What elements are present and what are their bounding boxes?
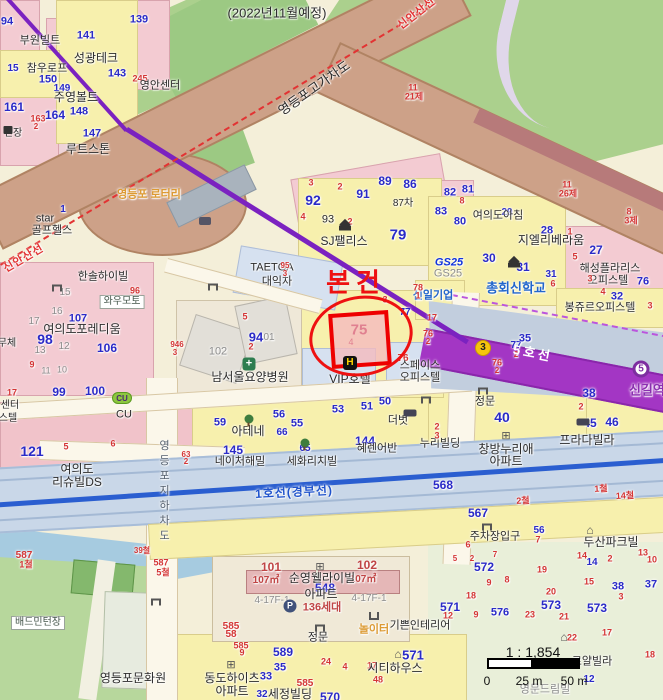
map-label: 9	[473, 611, 478, 620]
map-label: 6	[465, 541, 470, 550]
cu-icon: CU	[112, 392, 132, 404]
map-label: 19	[537, 566, 547, 575]
gate-icon	[52, 285, 62, 292]
map-label: 4	[600, 288, 605, 297]
map-label: 2	[184, 458, 188, 466]
map-label: 59	[214, 418, 226, 429]
map-label: 7	[493, 551, 497, 559]
map-label: 아파트	[489, 455, 522, 467]
map-label: 53	[332, 405, 344, 416]
map-label: 골프헬스	[32, 226, 72, 237]
map-label: 14철	[616, 491, 635, 501]
map-label: 2	[426, 338, 430, 346]
map-label: 누리빌딩	[420, 439, 460, 450]
map-label: 589	[273, 646, 293, 658]
map-label: 2철	[516, 496, 530, 506]
map-label: 567	[468, 507, 488, 519]
map-label: 여의도아침	[473, 211, 524, 222]
map-label: 568	[433, 479, 453, 491]
map-label: 13	[638, 549, 648, 558]
map-label: star	[36, 214, 54, 225]
map-label: 3	[618, 593, 623, 602]
shop-icon	[4, 126, 13, 134]
map-label: 리슈빌DS	[52, 476, 102, 488]
scooter-icon	[199, 217, 211, 225]
map-label: 1	[567, 228, 572, 237]
map-label: 총회신학교	[486, 282, 546, 295]
map-label: 영등포 로터리	[117, 190, 181, 201]
map-label: 39철	[134, 547, 150, 555]
map-label: 9	[239, 649, 244, 658]
map-label: CU	[116, 410, 132, 421]
car-icon	[404, 410, 417, 417]
map-label: 영등포문화원	[100, 672, 166, 684]
map-label: 9	[486, 579, 491, 588]
map-label: (2022년11월예정)	[228, 7, 327, 20]
map-label: 세정빌딩	[268, 688, 312, 700]
map-label: 5철	[156, 569, 169, 578]
map-label: 102	[209, 347, 227, 358]
map-label: 3	[308, 179, 313, 188]
map-label: 46	[605, 416, 618, 428]
map-label: 프라다빌라	[559, 434, 614, 446]
map-label: 80	[454, 217, 466, 228]
map-label: 27	[589, 244, 602, 256]
map-label: 93	[322, 215, 334, 226]
map-label: 3	[647, 302, 652, 311]
house-icon: ⌂	[394, 649, 401, 659]
map-label: 81	[462, 185, 474, 196]
map-label: 38	[582, 387, 595, 399]
map-label: 정문	[308, 633, 328, 644]
map-label: 145	[223, 444, 243, 456]
gate-icon	[482, 524, 492, 531]
map-label: 세화리치빌	[287, 457, 338, 468]
map-label: 주차장입구	[470, 532, 521, 543]
map-label: 2	[607, 555, 612, 564]
line5-icon: 5	[633, 361, 650, 378]
map-label: 99	[52, 386, 65, 398]
map-label: 576	[491, 608, 509, 619]
map-label: 21제	[405, 93, 423, 102]
car-icon	[577, 419, 590, 426]
play-icon	[369, 612, 379, 620]
map-label: 141	[77, 31, 95, 42]
map-label: 107㎡	[253, 576, 280, 586]
map-label: 3제	[624, 217, 637, 226]
map-label: 55	[291, 419, 303, 430]
map-label: 봉쥬르오피스텔	[565, 303, 636, 314]
map-label: 87차	[393, 199, 413, 209]
map-label: 33	[260, 672, 272, 683]
map-label: 9	[29, 361, 34, 370]
map-label: 143	[108, 69, 126, 80]
subject-label: 본건	[326, 263, 386, 300]
map-label: 98	[37, 332, 53, 346]
map-label: 35	[274, 663, 286, 674]
map-label: 17	[7, 389, 17, 398]
map-label: 7	[535, 536, 540, 545]
map-label: 12	[58, 342, 69, 352]
map-label: 570	[320, 691, 340, 700]
exit3-icon: 3	[475, 340, 491, 356]
map-label: 3	[587, 275, 592, 284]
map-label: 부원빌트	[20, 36, 60, 47]
map-label: 기쁜인테리어	[390, 621, 451, 632]
map-label: 1	[60, 205, 66, 215]
map-label: 23	[525, 611, 535, 620]
map-label: GS25	[434, 269, 462, 280]
tree-icon	[301, 439, 310, 448]
map-label: 106	[97, 342, 117, 354]
map-label: 루트스톤	[66, 143, 110, 155]
map-label: 22	[567, 634, 577, 643]
map-label: 8	[459, 197, 464, 206]
map-label: 1철	[594, 484, 608, 494]
map-label: 18	[645, 651, 655, 660]
hospital-icon: +	[243, 358, 256, 371]
map-label: 13	[34, 346, 45, 356]
map-label: 6	[110, 440, 115, 449]
map-label: 21	[559, 613, 569, 622]
scale-tick-0: 0	[484, 674, 491, 688]
map-label: 587	[153, 559, 168, 568]
parking-icon: P	[284, 600, 297, 613]
map-label: 아테네	[231, 425, 264, 437]
scale-bar-black	[533, 658, 580, 669]
map-label: 3	[173, 349, 177, 357]
house-icon: ⌂	[586, 525, 593, 535]
gate-icon	[421, 397, 431, 404]
map-label: 92	[305, 193, 321, 207]
map-label: 무체	[0, 339, 16, 349]
map-label: 573	[541, 599, 561, 611]
map-label: 아파트	[215, 685, 248, 697]
bldg-icon: ⊞	[315, 562, 324, 572]
map-label: 30	[482, 252, 495, 264]
map-label: 2	[34, 123, 38, 131]
map-label: 17	[602, 629, 612, 638]
map-label: 두산파크빌	[583, 536, 638, 548]
map-label: 17	[427, 314, 437, 323]
map-label: 89	[378, 175, 391, 187]
map-label: 51	[361, 402, 373, 413]
map-label: 2	[578, 403, 583, 412]
map-label: 102	[357, 559, 377, 571]
house-icon: ⌂	[560, 632, 567, 642]
bldg-icon: ⊞	[501, 431, 510, 441]
scale-tick-50: 50 m	[561, 674, 588, 688]
map-label: 아파트	[304, 588, 337, 600]
map-label: 남서울요양병원	[211, 371, 288, 383]
map-label: 10	[57, 366, 67, 375]
map-label: 11	[41, 367, 50, 376]
map-label: 32	[256, 690, 267, 700]
map-label: 76	[637, 277, 649, 288]
map-label: 26제	[559, 190, 577, 199]
map-label: 101	[261, 561, 281, 573]
map-label: SJ팰리스	[320, 235, 367, 247]
tree-icon	[245, 415, 254, 424]
map-label: 16	[51, 307, 62, 317]
map-label: 14	[586, 558, 597, 568]
map-label: 주영볼트	[54, 91, 98, 103]
map-label: 32	[611, 292, 623, 303]
map-label: 24	[321, 658, 331, 667]
map-label: 5	[63, 443, 68, 452]
map-label: 6	[550, 280, 555, 289]
map-label: 혜렌어반	[357, 444, 397, 455]
map-label: 영안센터	[140, 81, 180, 92]
map-label: 15	[584, 578, 594, 587]
map-label: 147	[83, 129, 101, 140]
map-label: 17	[28, 317, 39, 327]
map-label: 86	[403, 178, 416, 190]
map-label: 4-17F-1	[351, 594, 386, 604]
gate-icon	[151, 599, 161, 606]
map-label: 82	[444, 188, 456, 199]
map-label: 4	[342, 663, 347, 672]
map-label: 83	[435, 207, 447, 218]
gate-icon	[315, 625, 325, 632]
map-label: 동도하이츠	[204, 672, 259, 684]
map-label: 1철	[19, 561, 32, 570]
map-label: 40	[494, 410, 510, 424]
map-label: 대익차	[262, 277, 292, 288]
map-label: 01	[263, 333, 274, 343]
map-label: 영등포지하차도	[158, 440, 169, 545]
map-label: 20	[546, 588, 556, 597]
bldg-icon: ⊞	[226, 660, 235, 670]
map-label: 와우모토	[100, 295, 145, 309]
map-label: 2	[337, 183, 342, 192]
map-label: 79	[390, 228, 407, 243]
map-label: 여의도포레디움	[43, 323, 120, 335]
map-label: 8	[504, 576, 509, 585]
map-label: 50	[379, 397, 391, 408]
map-label: 58	[225, 630, 236, 640]
scale-bar-white	[487, 658, 533, 669]
map-label: 더벗	[388, 416, 408, 427]
map-label: 놀이터	[359, 625, 389, 636]
map-label: 스페이스	[400, 361, 440, 372]
school-icon	[339, 226, 351, 231]
map-label: 3	[283, 270, 287, 278]
map-label: 2	[248, 343, 253, 352]
map-label: 161	[4, 101, 24, 113]
map-label: 센터	[1, 401, 19, 411]
map-label: 48	[373, 676, 383, 685]
gate-icon	[478, 388, 488, 395]
map-label: 136세대	[303, 603, 342, 614]
map-label: 1	[415, 292, 420, 301]
map-label: 지엘리베라움	[518, 234, 584, 246]
scale-tick-25: 25 m	[516, 674, 543, 688]
map-label: 5	[572, 253, 577, 262]
map-label: 96	[130, 287, 140, 296]
map-label: 121	[20, 444, 43, 458]
map-label: 4	[300, 213, 305, 222]
map-label: 오피스텔	[400, 373, 440, 384]
map-label: 573	[587, 602, 607, 614]
map-label: 66	[276, 428, 287, 438]
map-label: 오피스텔	[588, 276, 628, 287]
map-label: 572	[474, 561, 494, 573]
map-label: 100	[85, 385, 105, 397]
map-label: 시티하우스	[367, 662, 422, 674]
gate-icon	[208, 284, 218, 291]
map-label: 배드민턴장	[11, 616, 65, 630]
map-label: 139	[130, 15, 148, 26]
map-label: 정문	[475, 397, 495, 408]
map-label: 3	[434, 432, 439, 441]
map-label: 91	[356, 188, 369, 200]
map-label: 2	[470, 555, 474, 563]
map-label: 여의도	[60, 463, 93, 475]
map-label: 56	[273, 410, 285, 421]
school-icon	[508, 263, 520, 268]
map-label: 148	[70, 107, 88, 118]
map-label: 네이처해밀	[215, 457, 266, 468]
map-label: 5	[242, 313, 247, 322]
map-label: 571	[402, 649, 424, 662]
map-canvas[interactable]: 75 4 본건 1 : 1,854 0 25 m 50 m (2022년11월예…	[0, 0, 663, 700]
map-label: 5	[453, 555, 457, 563]
map-label: 94	[1, 17, 13, 28]
map-label: 한솔하이빌	[78, 272, 129, 283]
map-label: 18	[466, 592, 476, 601]
map-label: 신길역	[629, 384, 663, 397]
map-label: 스텔	[0, 414, 17, 424]
map-label: 14	[577, 552, 587, 561]
map-label: 164	[45, 109, 65, 121]
map-label: 10	[647, 556, 657, 565]
map-label: 15	[7, 64, 18, 74]
map-label: 2	[495, 367, 499, 375]
map-label: 37	[645, 580, 657, 591]
map-label: 성광테크	[74, 52, 118, 64]
